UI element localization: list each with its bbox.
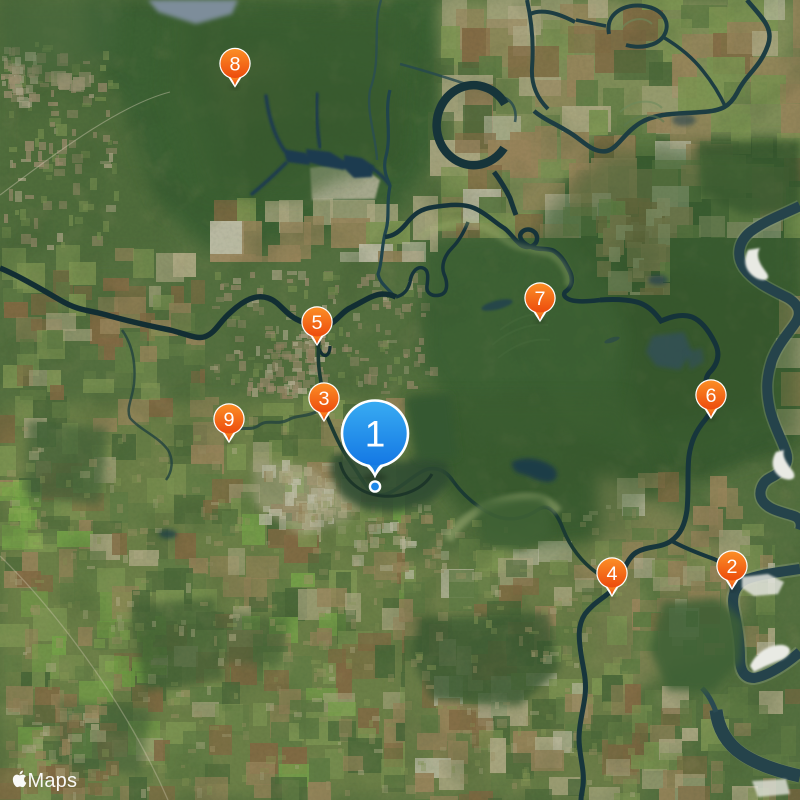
svg-text:Maps: Maps: [28, 770, 78, 792]
svg-text:1: 1: [365, 414, 386, 455]
svg-text:6: 6: [705, 385, 716, 407]
svg-text:3: 3: [318, 388, 329, 410]
svg-text:9: 9: [223, 409, 234, 431]
svg-text:2: 2: [726, 556, 737, 578]
svg-text:5: 5: [311, 312, 322, 334]
svg-text:4: 4: [606, 563, 617, 585]
svg-text:7: 7: [534, 288, 545, 310]
svg-text:8: 8: [229, 54, 240, 76]
